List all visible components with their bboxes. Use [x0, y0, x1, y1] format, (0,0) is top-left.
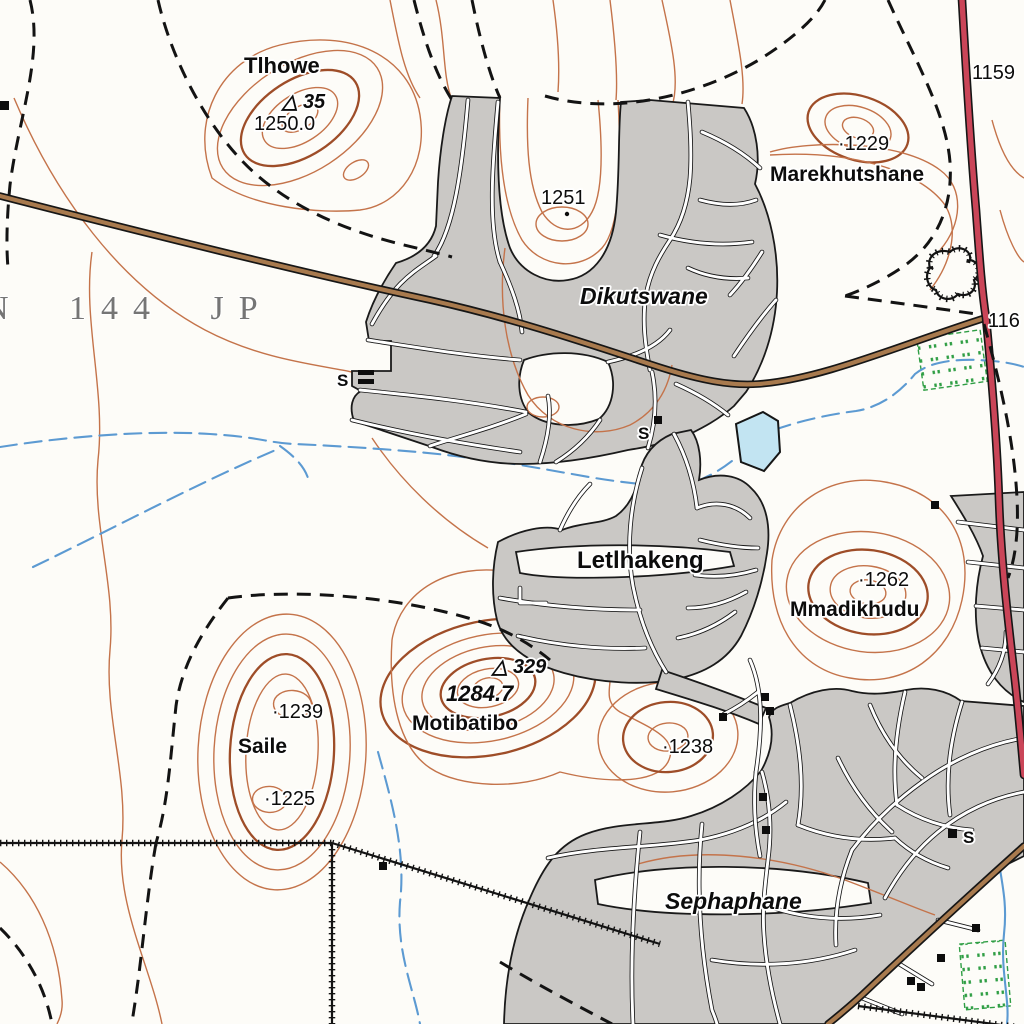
school-symbol-west: S — [337, 371, 348, 390]
label-village-sephaphane: Sephaphane — [665, 888, 802, 914]
spot-height-1239: ·1239 — [272, 701, 323, 723]
trig-beacon-motibatibo: △ 329 — [490, 656, 547, 678]
spot-height-1262: ·1262 — [858, 569, 909, 591]
spot-height-1225: ·1225 — [264, 788, 315, 810]
label-hill-marekhutshane: Marekhutshane — [770, 163, 924, 186]
spot-height-1284: 1284.7 — [446, 681, 515, 706]
label-hill-saile: Saile — [238, 735, 287, 758]
spot-height-1238: ·1238 — [662, 736, 713, 758]
spot-height-1251: 1251 — [541, 187, 586, 209]
farm-parcel-label: N 144 JP — [0, 290, 273, 327]
school-symbol-sephaphane: S — [963, 828, 974, 847]
route-number-116: 116 — [988, 310, 1020, 332]
topographic-map: Tlhowe △ 35 1250.0 1251 ·1229 Marekhutsh… — [0, 0, 1024, 1024]
trig-beacon-tlhowe: △ 35 — [280, 91, 326, 113]
route-number-1159: 1159 — [972, 62, 1015, 84]
spot-height-1229: ·1229 — [838, 133, 889, 155]
label-hill-mmadikhudu: Mmadikhudu — [790, 598, 920, 621]
spot-height-dot-1251 — [565, 212, 569, 216]
school-symbol-east: S — [638, 424, 649, 443]
label-village-letlhakeng: Letlhakeng — [577, 547, 704, 574]
label-hill-tlhowe: Tlhowe — [244, 53, 320, 78]
label-village-dikutswane: Dikutswane — [580, 283, 708, 309]
topographic-map-page: Tlhowe △ 35 1250.0 1251 ·1229 Marekhutsh… — [0, 0, 1024, 1024]
spot-height-1250: 1250.0 — [254, 113, 315, 135]
label-hill-motibatibo: Motibatibo — [412, 712, 518, 735]
